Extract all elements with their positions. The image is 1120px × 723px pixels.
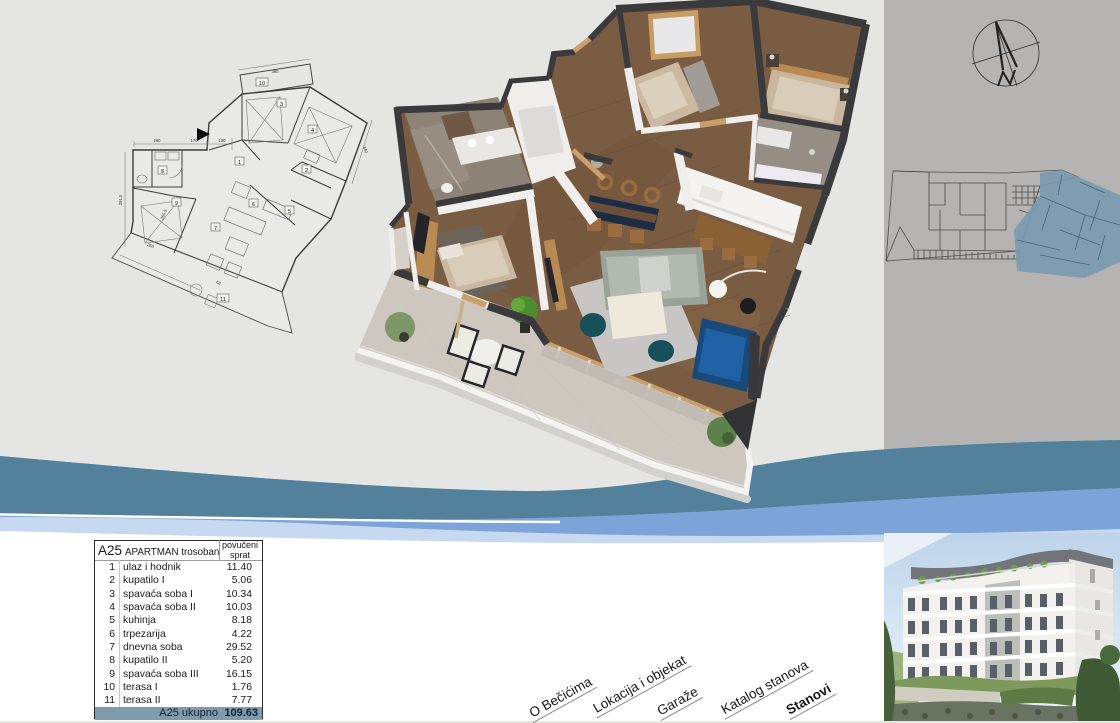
svg-text:8: 8 (161, 169, 164, 175)
svg-text:11: 11 (220, 297, 226, 303)
svg-text:291.5: 291.5 (118, 194, 123, 205)
svg-text:6: 6 (252, 202, 255, 208)
svg-text:1: 1 (238, 160, 241, 166)
svg-text:390: 390 (272, 69, 280, 74)
svg-text:190: 190 (219, 138, 227, 143)
svg-text:7: 7 (214, 226, 217, 232)
svg-text:3: 3 (280, 102, 283, 108)
svg-text:2: 2 (305, 168, 308, 174)
svg-text:170: 170 (191, 138, 199, 143)
svg-text:9: 9 (175, 201, 178, 207)
svg-text:5: 5 (288, 209, 291, 215)
svg-text:260: 260 (154, 138, 162, 143)
svg-text:10: 10 (259, 81, 265, 87)
svg-text:4: 4 (311, 128, 314, 134)
